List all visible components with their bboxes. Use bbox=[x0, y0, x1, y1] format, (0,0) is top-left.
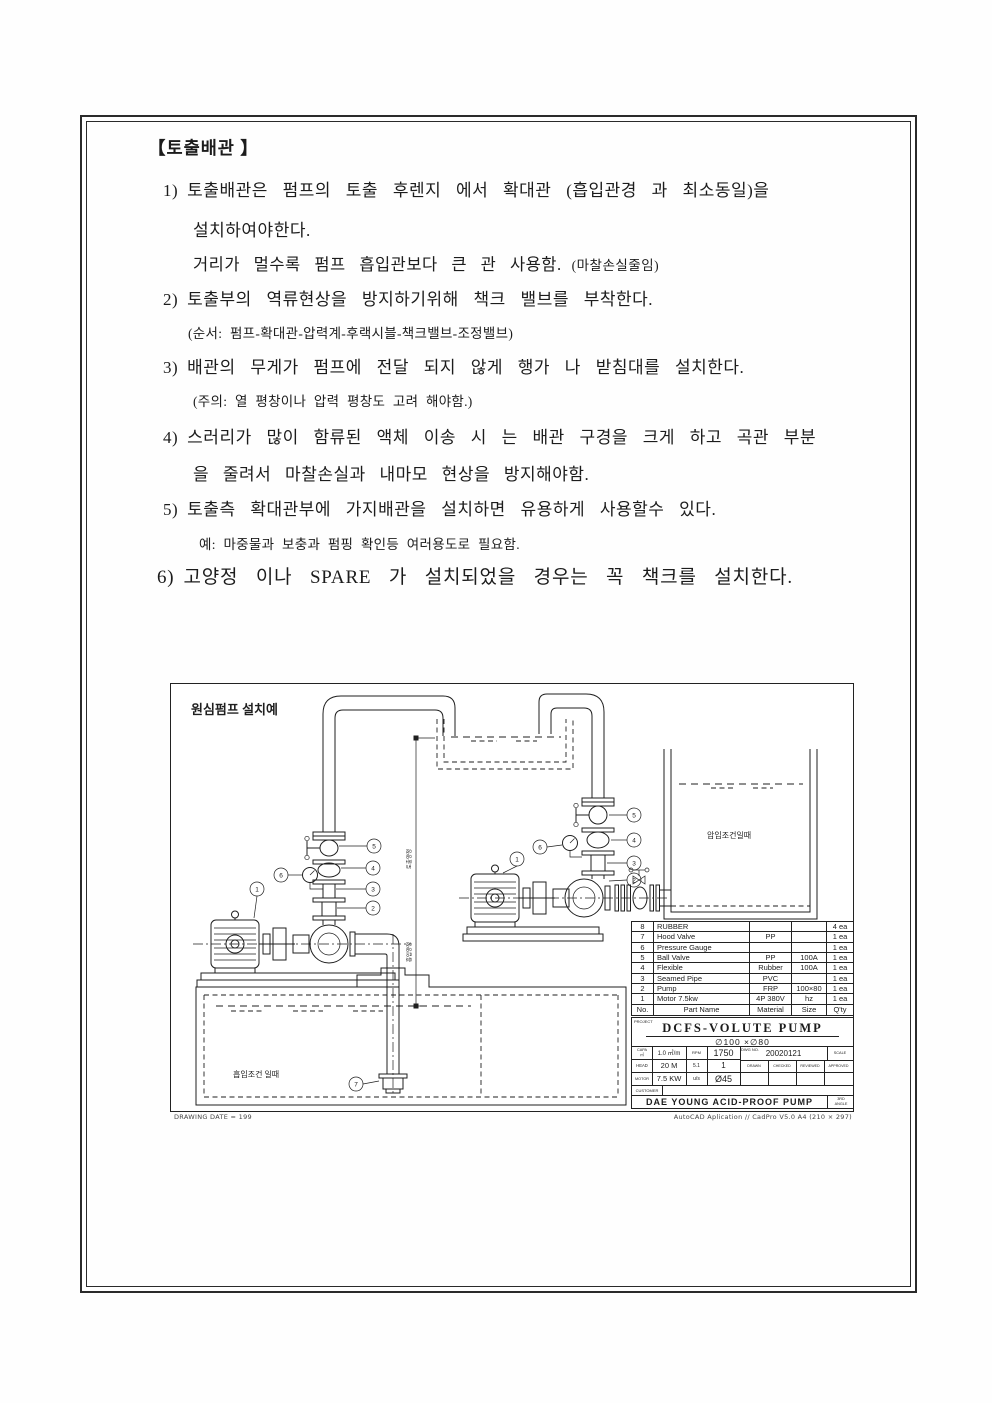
right-discharge-pipe bbox=[539, 694, 604, 798]
cell-material: FRP bbox=[750, 984, 792, 994]
cell-qty: 1 ea bbox=[827, 943, 853, 953]
svg-text:4: 4 bbox=[632, 837, 636, 844]
list-item-2-note: (순서: 펌프-확대관-압력계-후랙시블-책크밸브-조정밸브) bbox=[188, 322, 513, 342]
list-item-5-note: 예: 마중물과 보충과 펌핑 확인등 여러용도로 필요함. bbox=[199, 533, 520, 553]
project-label: PROJECT bbox=[634, 1019, 653, 1024]
cell-size bbox=[792, 974, 827, 984]
cell-material: Rubber bbox=[750, 963, 792, 973]
list-item-4: 4)스러리가 많이 함류된 액체 이송 시 는 배관 구경을 크게 하고 곡관 … bbox=[163, 423, 816, 448]
cell-no: 5 bbox=[632, 953, 654, 963]
cell-name: RUBBER bbox=[654, 922, 750, 932]
cell-size bbox=[792, 932, 827, 942]
svg-text:1: 1 bbox=[255, 886, 259, 893]
pressure-gauge-icon bbox=[563, 836, 583, 858]
item-text: 거리가 멀수록 펌프 흡입관보다 큰 관 사용함. bbox=[193, 255, 562, 274]
cell-material: PVC bbox=[750, 974, 792, 984]
cell-name: Motor 7.5kw bbox=[654, 994, 750, 1004]
cell-name: Flexible bbox=[654, 963, 750, 973]
item-text: 배관의 무게가 펌프에 전달 되지 않게 행가 나 받침대를 설치한다. bbox=[187, 358, 744, 377]
list-item-5: 5)토출측 확대관부에 가지배관을 설치하면 유용하게 사용할수 있다. bbox=[163, 495, 716, 520]
left-discharge-pipe bbox=[323, 696, 455, 832]
list-item-3-note: (주의: 열 평창이나 압력 평창도 고려 해야함.) bbox=[193, 390, 473, 410]
item-number: 5) bbox=[163, 500, 178, 519]
suction-tank: 흡입조건 일때 bbox=[196, 968, 626, 1105]
callout-7: 7 bbox=[349, 1077, 379, 1091]
item-text: 토출측 확대관부에 가지배관을 설치하면 유용하게 사용할수 있다. bbox=[187, 500, 716, 519]
customer-label: CUSTOMER bbox=[632, 1085, 663, 1095]
dwg-no-label: DWG NO. bbox=[741, 1047, 759, 1052]
header-qty: Q'ty bbox=[827, 1005, 853, 1015]
right-pump-assembly: 1 2 3 4 bbox=[459, 798, 671, 941]
motor-value: 7.5 KW bbox=[652, 1072, 687, 1086]
cell-qty: 1 ea bbox=[827, 984, 853, 994]
item-number: 1) bbox=[163, 181, 178, 200]
list-item-4-line2: 을 줄려서 마찰손실과 내마모 현상을 방지해야함. bbox=[193, 460, 589, 485]
head-value: 20 M bbox=[652, 1059, 687, 1073]
left-pump-assembly: 1 2 3 4 bbox=[193, 832, 411, 1096]
item-text: 스러리가 많이 함류된 액체 이송 시 는 배관 구경을 크게 하고 곡관 부분 bbox=[187, 428, 816, 447]
motor-aux2: Ø45 bbox=[707, 1072, 741, 1086]
header-size: Size bbox=[792, 1005, 827, 1015]
svg-text:1: 1 bbox=[515, 856, 519, 863]
capa-label: CAPA ㎥ bbox=[632, 1046, 653, 1060]
suction-tank-label: 흡입조건 일때 bbox=[233, 1069, 279, 1079]
cell-qty: 1 ea bbox=[827, 963, 853, 973]
cell-no: 4 bbox=[632, 963, 654, 973]
callout-4: 4 bbox=[341, 861, 380, 875]
cell-qty: 1 ea bbox=[827, 974, 853, 984]
approved-sign bbox=[824, 1072, 853, 1086]
svg-text:3: 3 bbox=[632, 860, 636, 867]
head-dimension-line: 토출양정 흡입양정 bbox=[405, 736, 435, 1009]
pressure-tank-label: 압입조건일때 bbox=[707, 830, 751, 840]
cell-no: 1 bbox=[632, 994, 654, 1004]
cell-size bbox=[792, 922, 827, 932]
cell-material bbox=[750, 943, 792, 953]
dwg-no-cell: DWG NO. 20020121 bbox=[740, 1046, 828, 1061]
cad-credit: AutoCAD Aplication // CadPro V5.0 A4 (21… bbox=[674, 1113, 852, 1121]
list-item-2: 2)토출부의 역류현상을 방지하기위해 책크 밸브를 부착한다. bbox=[163, 285, 653, 310]
motor-label: MOTOR bbox=[632, 1072, 653, 1086]
scale-cell: SCALE bbox=[827, 1046, 853, 1061]
cell-qty: 1 ea bbox=[827, 953, 853, 963]
rpm-label: RPM bbox=[686, 1046, 708, 1060]
parts-table: 8 RUBBER 4 ea 7 Hood Valve PP 1 ea 6 Pre… bbox=[631, 921, 854, 1016]
callout-5: 5 bbox=[339, 839, 381, 853]
list-item-3: 3)배관의 무게가 펌프에 전달 되지 않게 행가 나 받침대를 설치한다. bbox=[163, 353, 744, 378]
project-name: DCFS-VOLUTE PUMP bbox=[646, 1021, 839, 1037]
cell-material: PP bbox=[750, 953, 792, 963]
callout-6: 6 bbox=[533, 840, 562, 854]
header-no: No. bbox=[632, 1005, 654, 1015]
list-item-1-line2: 설치하여야한다. bbox=[193, 216, 311, 241]
header-name: Part Name bbox=[654, 1005, 750, 1015]
title-block: PROJECT DCFS-VOLUTE PUMP ∅100 ×∅80 CAPA … bbox=[631, 1017, 854, 1109]
list-item-6: 6)고양정 이나 SPARE 가 설치되었을 경우는 꼭 책크를 설치한다. bbox=[157, 562, 793, 589]
cell-size bbox=[792, 943, 827, 953]
svg-text:3: 3 bbox=[371, 886, 375, 893]
drawing-frame: 원심펌프 설치예 bbox=[170, 683, 854, 1112]
capa-value: 1.0 ㎥/m bbox=[652, 1046, 687, 1060]
angle-line2: ANGLE bbox=[835, 1102, 848, 1107]
callout-2: 2 bbox=[337, 901, 380, 915]
callout-4: 4 bbox=[611, 833, 641, 847]
discharge-stack bbox=[574, 798, 614, 875]
checked-sign bbox=[768, 1072, 797, 1086]
company-name: DAE YOUNG ACID-PROOF PUMP bbox=[632, 1095, 827, 1108]
svg-text:7: 7 bbox=[354, 1081, 358, 1088]
dwg-no-value: 20020121 bbox=[766, 1049, 802, 1058]
cell-name: Hood Valve bbox=[654, 932, 750, 942]
cell-qty: 4 ea bbox=[827, 922, 853, 932]
item-text: 토출배관은 펌프의 토출 후렌지 에서 확대관 (흡입관경 과 최소동일)을 bbox=[187, 181, 769, 200]
item-number: 2) bbox=[163, 290, 178, 309]
pressure-gauge-icon bbox=[303, 868, 324, 890]
motor-icon bbox=[471, 865, 519, 927]
svg-text:2: 2 bbox=[371, 905, 375, 912]
list-item-1: 1)토출배관은 펌프의 토출 후렌지 에서 확대관 (흡입관경 과 최소동일)을 bbox=[163, 176, 769, 201]
cell-no: 2 bbox=[632, 984, 654, 994]
head-aux2: 1 bbox=[707, 1059, 741, 1073]
cell-name: Seamed Pipe bbox=[654, 974, 750, 984]
capa-unit-text: ㎥ bbox=[640, 1053, 644, 1058]
svg-text:4: 4 bbox=[371, 865, 375, 872]
projection-angle: 3RD ANGLE bbox=[827, 1095, 854, 1108]
document-page: 【토출배관 】 1)토출배관은 펌프의 토출 후렌지 에서 확대관 (흡입관경 … bbox=[0, 0, 992, 1403]
head-aux: 5.1 bbox=[686, 1059, 708, 1073]
cell-no: 3 bbox=[632, 974, 654, 984]
pump-casing bbox=[553, 875, 610, 917]
drawing-title: 원심펌프 설치예 bbox=[191, 702, 278, 717]
cell-size: 100A bbox=[792, 963, 827, 973]
item-number: 4) bbox=[163, 428, 178, 447]
project-section: PROJECT DCFS-VOLUTE PUMP ∅100 ×∅80 bbox=[632, 1018, 853, 1047]
pump-casing bbox=[293, 920, 355, 963]
cell-qty: 1 ea bbox=[827, 994, 853, 1004]
svg-text:5: 5 bbox=[372, 843, 376, 850]
svg-text:6: 6 bbox=[538, 844, 542, 851]
item-note: (마찰손실줄임) bbox=[572, 258, 660, 273]
suction-pipe bbox=[355, 934, 399, 1096]
section-title: 【토출배관 】 bbox=[148, 135, 259, 160]
callout-5: 5 bbox=[609, 808, 641, 822]
discharge-stack bbox=[305, 832, 345, 920]
header-material: Material bbox=[750, 1005, 792, 1015]
cell-no: 7 bbox=[632, 932, 654, 942]
callout-1: 1 bbox=[250, 882, 264, 918]
cell-size: 100A bbox=[792, 953, 827, 963]
elevated-tank bbox=[437, 719, 573, 769]
cell-size: hz bbox=[792, 994, 827, 1004]
svg-text:5: 5 bbox=[632, 812, 636, 819]
svg-text:6: 6 bbox=[279, 872, 283, 879]
rpm-value: 1750 bbox=[707, 1046, 741, 1060]
cell-material bbox=[750, 922, 792, 932]
item-number: 3) bbox=[163, 358, 178, 377]
dim-label-discharge-head: 토출양정 bbox=[405, 849, 413, 869]
cell-name: Ball Valve bbox=[654, 953, 750, 963]
dim-label-suction-head: 흡입양정 bbox=[405, 942, 413, 962]
callout-3: 3 bbox=[607, 856, 641, 870]
svg-text:2: 2 bbox=[632, 877, 636, 884]
cell-name: Pressure Gauge bbox=[654, 943, 750, 953]
suction-fittings bbox=[615, 868, 671, 911]
callout-1: 1 bbox=[503, 852, 524, 873]
cell-material: PP bbox=[750, 932, 792, 942]
cell-size: 100×80 bbox=[792, 984, 827, 994]
callout-6: 6 bbox=[274, 868, 302, 882]
item-text: 토출부의 역류현상을 방지하기위해 책크 밸브를 부착한다. bbox=[187, 290, 653, 309]
cell-qty: 1 ea bbox=[827, 932, 853, 942]
drawn-sign bbox=[740, 1072, 769, 1086]
cell-no: 8 bbox=[632, 922, 654, 932]
cell-material: 4P 380V bbox=[750, 994, 792, 1004]
item-number: 6) bbox=[157, 567, 174, 588]
pressure-tank: 압입조건일때 bbox=[664, 749, 817, 919]
item-text: 고양정 이나 SPARE 가 설치되었을 경우는 꼭 책크를 설치한다. bbox=[183, 567, 793, 588]
cell-name: Pump bbox=[654, 984, 750, 994]
head-label: HEAD bbox=[632, 1059, 653, 1073]
cell-no: 6 bbox=[632, 943, 654, 953]
drawing-date: DRAWING DATE = 199 bbox=[174, 1113, 252, 1121]
reviewed-sign bbox=[796, 1072, 825, 1086]
motor-aux: u/s bbox=[686, 1072, 708, 1086]
list-item-1-line3: 거리가 멀수록 펌프 흡입관보다 큰 관 사용함.(마찰손실줄임) bbox=[193, 251, 659, 275]
motor-icon bbox=[211, 911, 259, 973]
